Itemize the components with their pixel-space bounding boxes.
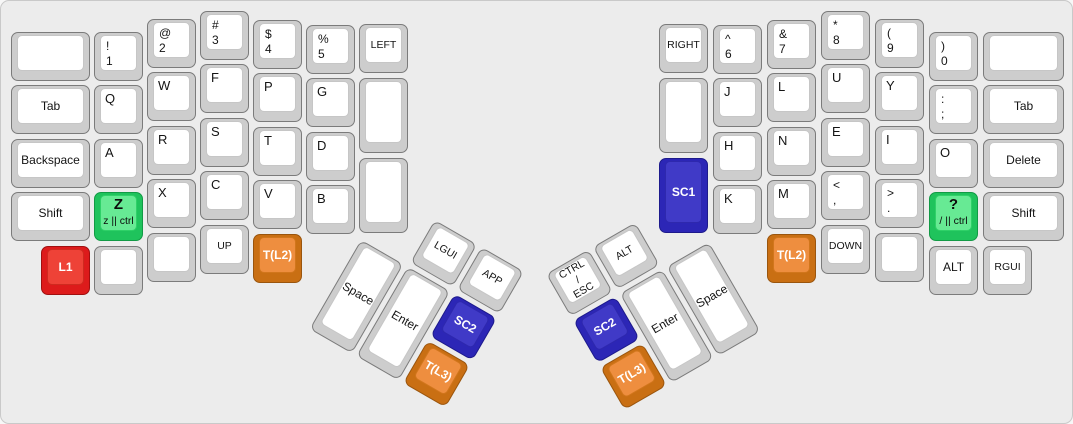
keycap: U [827,67,864,103]
keycap: T [259,130,296,166]
keycap: T(L3) [413,346,463,396]
key-label: ; [941,107,966,122]
key-backspace[interactable]: Backspace [11,139,90,188]
key-label: V [264,186,273,201]
key-l1[interactable]: L1 [41,246,90,295]
key-label: T(L2) [777,248,806,263]
key-label: % [318,32,343,47]
keycap: N [773,130,810,166]
key-label: 0 [941,54,966,69]
key-label: Tab [41,99,60,114]
key-3[interactable]: #3 [200,11,249,60]
key-label: SC2 [451,312,479,337]
key-label: X [158,185,167,200]
key-tab[interactable]: Tab [11,85,90,134]
key-label: D [317,138,326,153]
key-0[interactable]: )0 [929,32,978,81]
key-sublabel: / || ctrl [939,214,967,229]
key-blank[interactable] [875,233,924,282]
key-label: ( [887,26,912,41]
key-semicolon[interactable]: :; [929,85,978,134]
keycap: A [100,142,137,178]
keycap: Shift [17,195,84,231]
keycap: V [259,183,296,219]
key-shift[interactable]: Shift [11,192,90,241]
key-label: Space [340,279,377,309]
key-label: : [941,92,966,107]
key-label: T [264,133,272,148]
keyboard-panel: !1 @2 #3 $4 %5 LEFT Tab Q W F P G Backsp… [0,0,1073,424]
key-label: L [778,79,785,94]
key-slash-ctrl[interactable]: ?/ || ctrl [929,192,978,241]
key-x[interactable]: X [147,179,196,228]
key-blank[interactable] [11,32,90,81]
key-label: O [940,145,950,160]
keycap [881,236,918,272]
keycap: Tab [989,88,1058,124]
key-label: RIGHT [667,38,700,53]
keycap [153,236,190,272]
key-blank[interactable] [983,32,1064,81]
key-up-arrow[interactable]: UP [200,225,249,274]
keycap: Y [881,75,918,111]
key-label: U [832,70,841,85]
key-label: H [724,138,733,153]
key-label: @ [159,26,184,41]
keycap: RIGHT [665,27,702,63]
key-label: & [779,27,804,42]
keycap: O [935,142,972,178]
keycap: ALT [599,228,649,278]
key-label: 9 [887,41,912,56]
key-tab[interactable]: Tab [983,85,1064,134]
key-left-arrow[interactable]: LEFT [359,24,408,73]
key-s[interactable]: S [200,118,249,167]
key-z-ctrl[interactable]: Zz || ctrl [94,192,143,241]
keycap: !1 [100,35,137,71]
keycap: CTRL / ESC [553,255,603,305]
keycap: Shift [989,195,1058,231]
keycap: Tab [17,88,84,124]
key-label: L1 [58,260,72,275]
key-label: Shift [38,206,62,221]
key-label: 2 [159,41,184,56]
keycap: &7 [773,23,810,59]
keycap: B [312,188,349,224]
key-label: Y [886,78,895,93]
keycap: %5 [312,28,349,64]
key-label: UP [217,239,232,254]
key-u[interactable]: U [821,64,870,113]
key-right-arrow[interactable]: RIGHT [659,24,708,73]
key-r[interactable]: R [147,126,196,175]
key-label: < [833,178,858,193]
keycap: RGUI [989,249,1026,285]
key-i[interactable]: I [875,126,924,175]
keycap: T(L2) [259,237,296,273]
keycap: P [259,76,296,112]
key-t-l2[interactable]: T(L2) [767,234,816,283]
key-p[interactable]: P [253,73,302,122]
key-w[interactable]: W [147,72,196,121]
keycap [100,249,137,285]
key-a[interactable]: A [94,139,143,188]
key-alt[interactable]: ALT [929,246,978,295]
keycap: <, [827,174,864,210]
key-label: Space [693,281,730,311]
key-t[interactable]: T [253,127,302,176]
key-label: ) [941,39,966,54]
key-1[interactable]: !1 [94,32,143,81]
key-label: ! [106,39,131,54]
keycap: I [881,129,918,165]
key-label: > [887,186,912,201]
key-label: B [317,191,326,206]
key-label: ALT [943,260,964,275]
keycap: H [719,135,756,171]
key-7[interactable]: &7 [767,20,816,69]
key-label: CTRL / ESC [557,257,599,302]
key-q[interactable]: Q [94,85,143,134]
key-label: 7 [779,42,804,57]
key-label: # [212,18,237,33]
key-label: R [158,132,167,147]
keycap: K [719,188,756,224]
key-label: Tab [1014,99,1033,114]
key-label: 8 [833,33,858,48]
keycap: Q [100,88,137,124]
keycap: :; [935,88,972,124]
key-label: C [211,177,220,192]
key-label: T(L3) [615,360,648,388]
keycap: D [312,135,349,171]
key-down-arrow[interactable]: DOWN [821,225,870,274]
key-label: G [317,84,327,99]
keycap: J [719,81,756,117]
keycap: $4 [259,23,296,59]
keycap: T(L2) [773,237,810,273]
keycap: #3 [206,14,243,50]
key-blank[interactable] [359,78,408,153]
key-label: 3 [212,33,237,48]
key-label: Q [105,91,115,106]
key-t-l2[interactable]: T(L2) [253,234,302,283]
keycap: SC2 [580,302,630,352]
keycap: ?/ || ctrl [935,195,972,231]
keycap [17,35,84,71]
key-label: 4 [265,42,290,57]
key-label: 1 [106,54,131,69]
keycap [989,35,1058,71]
key-rgui[interactable]: RGUI [983,246,1032,295]
key-label: E [832,124,841,139]
key-label: W [158,78,170,93]
key-label: ^ [725,32,750,47]
key-8[interactable]: *8 [821,11,870,60]
key-label: ? [949,197,958,212]
key-shift[interactable]: Shift [983,192,1064,241]
keycap: C [206,174,243,210]
key-j[interactable]: J [713,78,762,127]
key-label: P [264,79,273,94]
key-6[interactable]: ^6 [713,25,762,74]
key-blank[interactable] [659,78,708,153]
key-label: K [724,191,733,206]
key-y[interactable]: Y [875,72,924,121]
key-label: . [887,201,912,216]
key-label: , [833,193,858,208]
keycap: ALT [935,249,972,285]
key-c[interactable]: C [200,171,249,220]
key-label: 5 [318,47,343,62]
key-o[interactable]: O [929,139,978,188]
key-m[interactable]: M [767,180,816,229]
key-label: T(L2) [263,248,292,263]
key-label: ALT [613,242,637,264]
key-label: 6 [725,47,750,62]
key-e[interactable]: E [821,118,870,167]
keycap: Backspace [17,142,84,178]
keycap: UP [206,228,243,264]
key-label: DOWN [829,239,862,254]
key-label: N [778,133,787,148]
keycap [365,81,402,143]
key-b[interactable]: B [306,185,355,234]
key-label: A [105,145,114,160]
key-blank[interactable] [147,233,196,282]
key-label: LGUI [431,238,460,263]
key-label: J [724,84,731,99]
key-delete[interactable]: Delete [983,139,1064,188]
keycap: G [312,81,349,117]
key-comma[interactable]: <, [821,171,870,220]
key-label: Enter [389,307,421,334]
keycap: X [153,182,190,218]
keycap: T(L3) [607,349,657,399]
key-blank[interactable] [94,246,143,295]
key-n[interactable]: N [767,127,816,176]
key-label: Enter [649,309,681,336]
key-label: SC2 [591,314,619,339]
key-label: * [833,18,858,33]
keycap: Delete [989,142,1058,178]
key-label: Z [114,197,123,212]
key-label: F [211,70,219,85]
key-label: APP [479,266,505,289]
keycap: LGUI [420,226,470,276]
key-d[interactable]: D [306,132,355,181]
key-label: I [886,132,890,147]
keycap: F [206,67,243,103]
key-v[interactable]: V [253,180,302,229]
keycap: (9 [881,22,918,58]
key-f[interactable]: F [200,64,249,113]
key-label: S [211,124,220,139]
keycap: APP [467,253,517,303]
keycap: LEFT [365,27,402,63]
key-sublabel: z || ctrl [103,214,134,229]
keycap: Zz || ctrl [100,195,137,231]
keycap: *8 [827,14,864,50]
key-9[interactable]: (9 [875,19,924,68]
key-h[interactable]: H [713,132,762,181]
keycap: ^6 [719,28,756,64]
keycap: @2 [153,22,190,58]
key-label: Shift [1011,206,1035,221]
keycap: M [773,183,810,219]
key-k[interactable]: K [713,185,762,234]
key-label: T(L3) [422,357,455,385]
keycap: W [153,75,190,111]
key-g[interactable]: G [306,78,355,127]
keycap: SC2 [440,299,490,349]
keycap: E [827,121,864,157]
key-5[interactable]: %5 [306,25,355,74]
key-period[interactable]: >. [875,179,924,228]
key-label: Delete [1006,153,1041,168]
key-2[interactable]: @2 [147,19,196,68]
key-label: M [778,186,789,201]
key-label: RGUI [994,260,1020,275]
key-label: Backspace [21,153,80,168]
key-label: LEFT [371,38,397,53]
key-4[interactable]: $4 [253,20,302,69]
keycap: >. [881,182,918,218]
key-label: $ [265,27,290,42]
keycap: )0 [935,35,972,71]
keycap: S [206,121,243,157]
key-l[interactable]: L [767,73,816,122]
keycap: DOWN [827,228,864,264]
keycap: R [153,129,190,165]
keycap: L [773,76,810,112]
keycap [665,81,702,143]
keycap: L1 [47,249,84,285]
